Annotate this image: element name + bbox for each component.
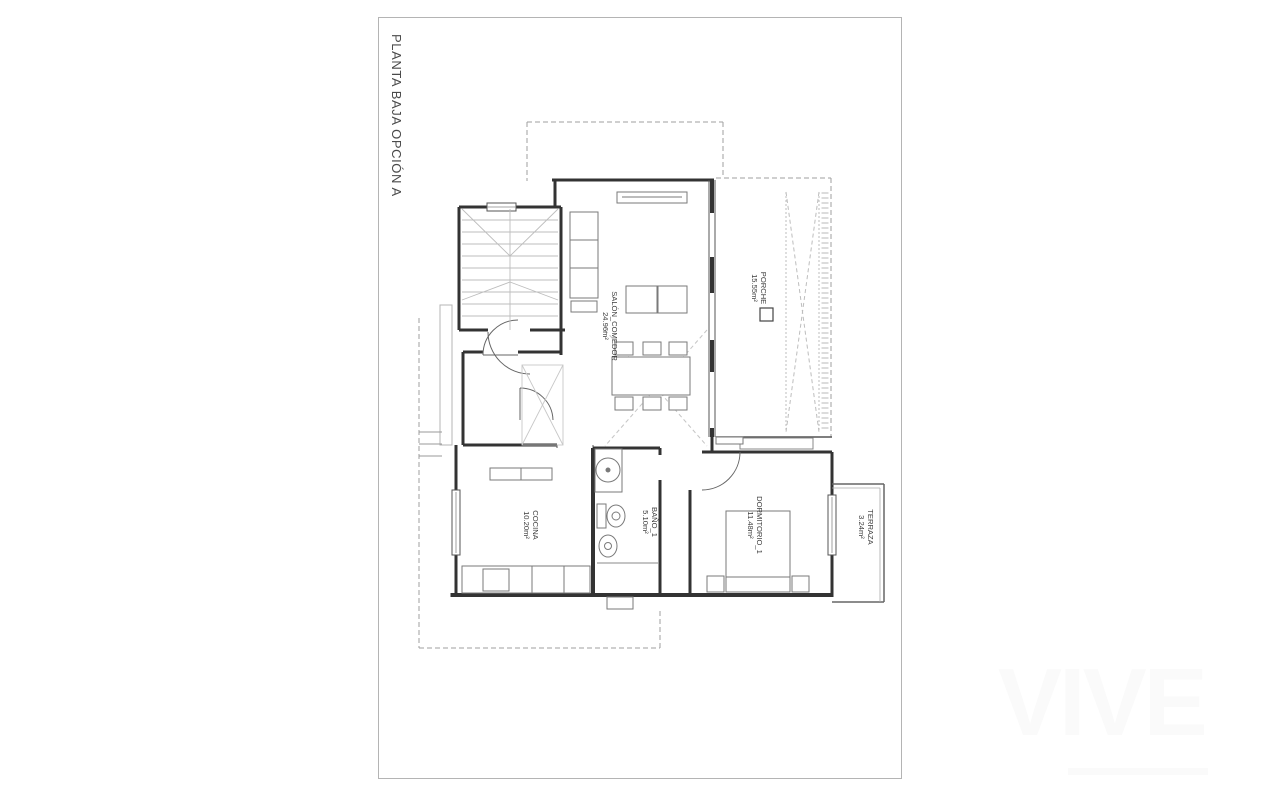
room-area: 5.10m²	[641, 500, 650, 544]
coffee-table	[626, 286, 657, 313]
toilet-cistern	[597, 504, 606, 528]
rear-doorstep	[607, 597, 633, 609]
dining-chair	[615, 397, 633, 410]
dining-chair	[643, 397, 661, 410]
bedroom-door-arc	[702, 452, 740, 490]
porch-zone	[716, 178, 832, 449]
room-label-porche: PORCHE 15.55m²	[750, 268, 767, 308]
room-label-salon: SALÓN_COMEDOR 24.96m²	[601, 291, 618, 361]
living-room-furniture	[570, 192, 690, 410]
room-label-terraza: TERRAZA 3.24m²	[857, 506, 874, 548]
porch-x-bracing	[786, 192, 819, 432]
room-label-dormitorio: DORMITORIO_1 11.48m²	[746, 496, 763, 554]
roof-overhang-dashed	[527, 122, 723, 181]
room-area: 11.48m²	[746, 496, 755, 554]
room-label-cocina: COCINA 10.20m²	[522, 503, 539, 547]
nightstand	[792, 576, 809, 592]
dining-chair	[643, 342, 661, 355]
drawing-canvas: VIVE	[0, 0, 1280, 800]
dining-table	[612, 357, 690, 395]
kitchen-sink	[483, 569, 509, 591]
staircase	[462, 209, 558, 330]
room-area: 3.24m²	[857, 506, 866, 548]
entrance-canopy	[522, 365, 563, 445]
room-name: BAÑO_1	[649, 500, 658, 544]
dining-chair	[669, 342, 687, 355]
nightstand	[707, 576, 724, 592]
room-name: COCINA	[530, 503, 539, 547]
salon-porch-step	[716, 437, 743, 444]
room-area: 10.20m²	[522, 503, 531, 547]
room-area: 24.96m²	[601, 291, 610, 361]
side-table	[571, 301, 597, 312]
entrance-planter	[440, 305, 452, 445]
room-name: DORMITORIO_1	[754, 496, 763, 554]
dining-chair	[669, 397, 687, 410]
sheet-title: PLANTA BAJA OPCIÓN A	[389, 34, 404, 209]
porch-column	[760, 308, 773, 321]
porch-step	[740, 438, 813, 449]
sofa	[570, 212, 598, 298]
room-name: SALÓN_COMEDOR	[609, 291, 618, 361]
floor-plan-drawing	[0, 0, 1280, 800]
room-name: PORCHE	[758, 268, 767, 308]
entry-steps	[419, 432, 442, 456]
room-name: TERRAZA	[865, 506, 874, 548]
room-label-bano: BAÑO_1 5.10m²	[641, 500, 658, 544]
room-area: 15.55m²	[750, 268, 759, 308]
armchair	[658, 286, 687, 313]
